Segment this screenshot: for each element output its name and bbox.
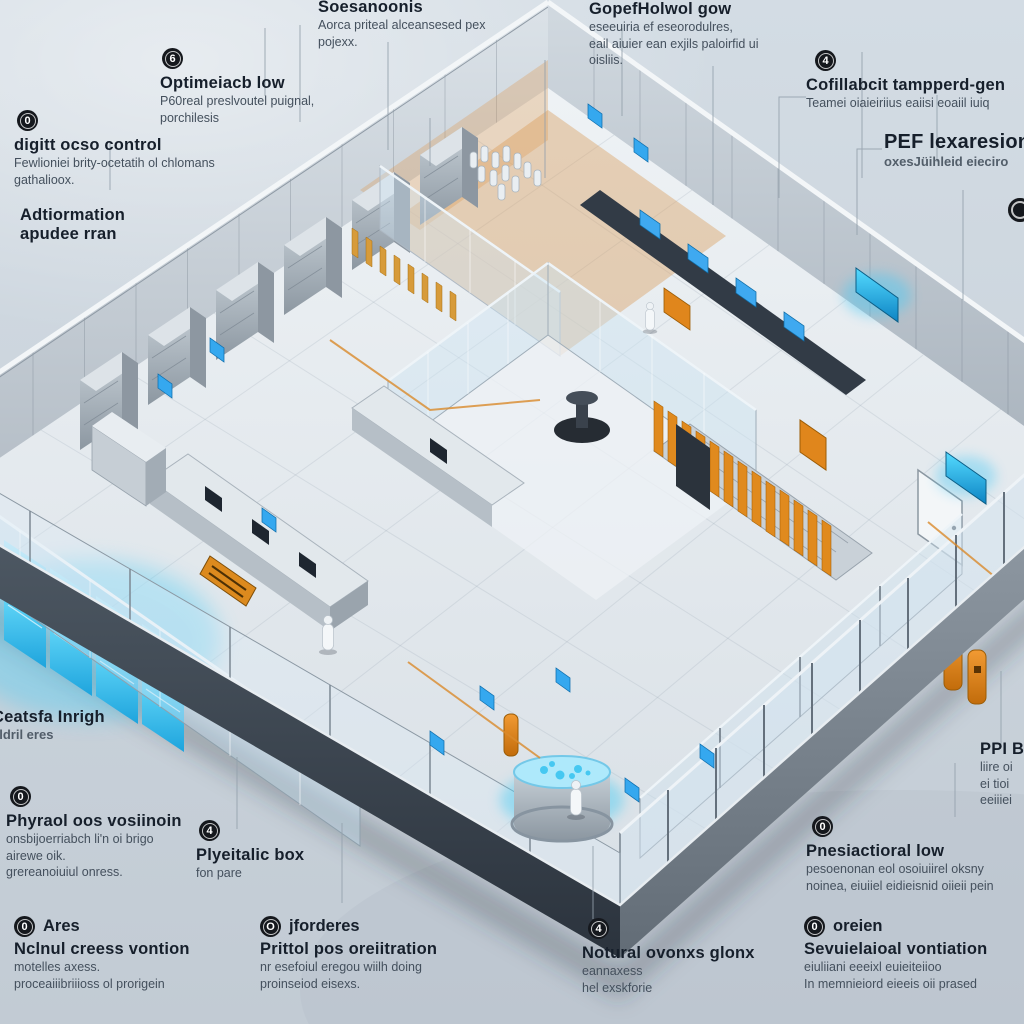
callout-02: GopefHolwol gow eseeuiria ef eseorodulre… bbox=[589, 0, 759, 69]
callout-line: onsbijoerriabch li'n oi brigo bbox=[6, 831, 182, 848]
callout-line: P60real preslvoutel puignal, bbox=[160, 93, 314, 110]
callout-title: apudee rran bbox=[20, 225, 125, 244]
callout-line: nr esefoiul eregou wiilh doing bbox=[260, 959, 437, 976]
callout-07: Adtiormation apudee rran bbox=[20, 206, 125, 244]
callout-badge: 4 bbox=[815, 50, 836, 71]
callout-01: Šoesanoonis Aorca priteal alceansesed pe… bbox=[318, 0, 485, 50]
callout-badge: 0 bbox=[804, 916, 825, 937]
callout-title: Šoesanoonis bbox=[318, 0, 485, 17]
callout-line: grereanoiuiul onress. bbox=[6, 864, 182, 881]
callout-inline-title: Ares bbox=[43, 917, 80, 936]
callout-12: 0 Ares Nclnul creess vontion motelles ax… bbox=[14, 916, 190, 992]
callout-line: fon pare bbox=[196, 865, 304, 882]
callout-title: Nclnul creess vontion bbox=[14, 940, 190, 959]
callout-line: hel exskforie bbox=[582, 980, 755, 997]
callout-line: noinea, eiuiiel eidieisnid oiieii pein bbox=[806, 878, 994, 895]
callout-title: Ceatsfa Inrigh bbox=[0, 708, 105, 727]
callout-line: Fewlioniei brity-ocetatih ol chlomans bbox=[14, 155, 215, 172]
callout-10: 4 Plyeitalic box fon pare bbox=[196, 820, 304, 882]
callout-line: eiuliiani eeeixl euieiteiioo bbox=[804, 959, 987, 976]
callout-badge: 0 bbox=[14, 916, 35, 937]
callout-16: PPI B liire oi ei tioi eeiiiei bbox=[980, 740, 1024, 809]
callout-line: proceaiiibriiioss ol prorigein bbox=[14, 976, 190, 993]
callout-line: eeiiiei bbox=[980, 792, 1024, 809]
callout-inline-title: oreien bbox=[833, 917, 883, 936]
callout-line: oisliis. bbox=[589, 52, 759, 69]
callout-line: gathalioox. bbox=[14, 172, 215, 189]
callout-title: Phyraol oos vosiinoin bbox=[6, 812, 182, 831]
callout-title: GopefHolwol gow bbox=[589, 0, 759, 19]
callout-line: motelles axess. bbox=[14, 959, 190, 976]
callout-badge: 4 bbox=[199, 820, 220, 841]
callout-line: oxesJüihleid eieciro bbox=[884, 154, 1024, 171]
callout-badge: 6 bbox=[162, 48, 183, 69]
callout-badge: O bbox=[260, 916, 281, 937]
callout-line: liire oi bbox=[980, 759, 1024, 776]
callout-badge: 4 bbox=[588, 918, 609, 939]
callout-line: In memnieiord eieeis oii prased bbox=[804, 976, 987, 993]
callout-14: 0 Pnesiactioral low pesoenonan eol osoiu… bbox=[806, 816, 994, 894]
callout-title: Sevuielaioal vontiation bbox=[804, 940, 987, 959]
callout-title: Notural ovonxs glonx bbox=[582, 944, 755, 963]
callout-title: Adtiormation bbox=[20, 206, 125, 225]
callout-title: PEF lexaresion bbox=[884, 131, 1024, 154]
callout-inline-title: jforderes bbox=[289, 917, 360, 936]
callout-15: 0 oreien Sevuielaioal vontiation eiuliia… bbox=[804, 916, 987, 992]
callout-line: eannaxess bbox=[582, 963, 755, 980]
callout-title: Optimeiacb low bbox=[160, 74, 314, 93]
callout-11: O jforderes Prittol pos oreiitration nr … bbox=[260, 916, 437, 992]
callout-badge: 0 bbox=[812, 816, 833, 837]
callout-line: airewe oik. bbox=[6, 848, 182, 865]
callout-title: Prittol pos oreiitration bbox=[260, 940, 437, 959]
screenshot-root: Šoesanoonis Aorca priteal alceansesed pe… bbox=[0, 0, 1024, 1024]
callout-line: ei tioi bbox=[980, 776, 1024, 793]
callout-13: 4 Notural ovonxs glonx eannaxess hel exs… bbox=[582, 918, 755, 996]
callout-title: Cofillabcit tampperd-gen bbox=[806, 76, 1005, 95]
callout-line: pesoenonan eol osoiuiirel oksny bbox=[806, 861, 994, 878]
callout-06: 0 digitt ocso control Fewlioniei brity-o… bbox=[14, 110, 215, 188]
callout-line: Teamei oiaieiriius eaiisi eoaiil iuiq bbox=[806, 95, 1005, 112]
callout-03: 4 Cofillabcit tampperd-gen Teamei oiaiei… bbox=[806, 50, 1005, 112]
callout-title: Plyeitalic box bbox=[196, 846, 304, 865]
callout-04: PEF lexaresion oxesJüihleid eieciro bbox=[884, 131, 1024, 171]
callout-title: digitt ocso control bbox=[14, 136, 215, 155]
callout-line: pojexx. bbox=[318, 34, 485, 51]
callout-09: 0 Phyraol oos vosiinoin onsbijoerriabch … bbox=[6, 786, 182, 881]
callout-line: cldril eres bbox=[0, 727, 105, 744]
callout-title: PPI B bbox=[980, 740, 1024, 759]
callout-badge: 0 bbox=[10, 786, 31, 807]
callout-line: proinseiod eisexs. bbox=[260, 976, 437, 993]
callout-08: Ceatsfa Inrigh cldril eres bbox=[0, 708, 105, 744]
callout-badge: 0 bbox=[17, 110, 38, 131]
callout-line: Aorca priteal alceansesed pex bbox=[318, 17, 485, 34]
callout-line: eail aiuier ean exjils paloirfid ui bbox=[589, 36, 759, 53]
callout-title: Pnesiactioral low bbox=[806, 842, 994, 861]
callout-line: eseeuiria ef eseorodulres, bbox=[589, 19, 759, 36]
